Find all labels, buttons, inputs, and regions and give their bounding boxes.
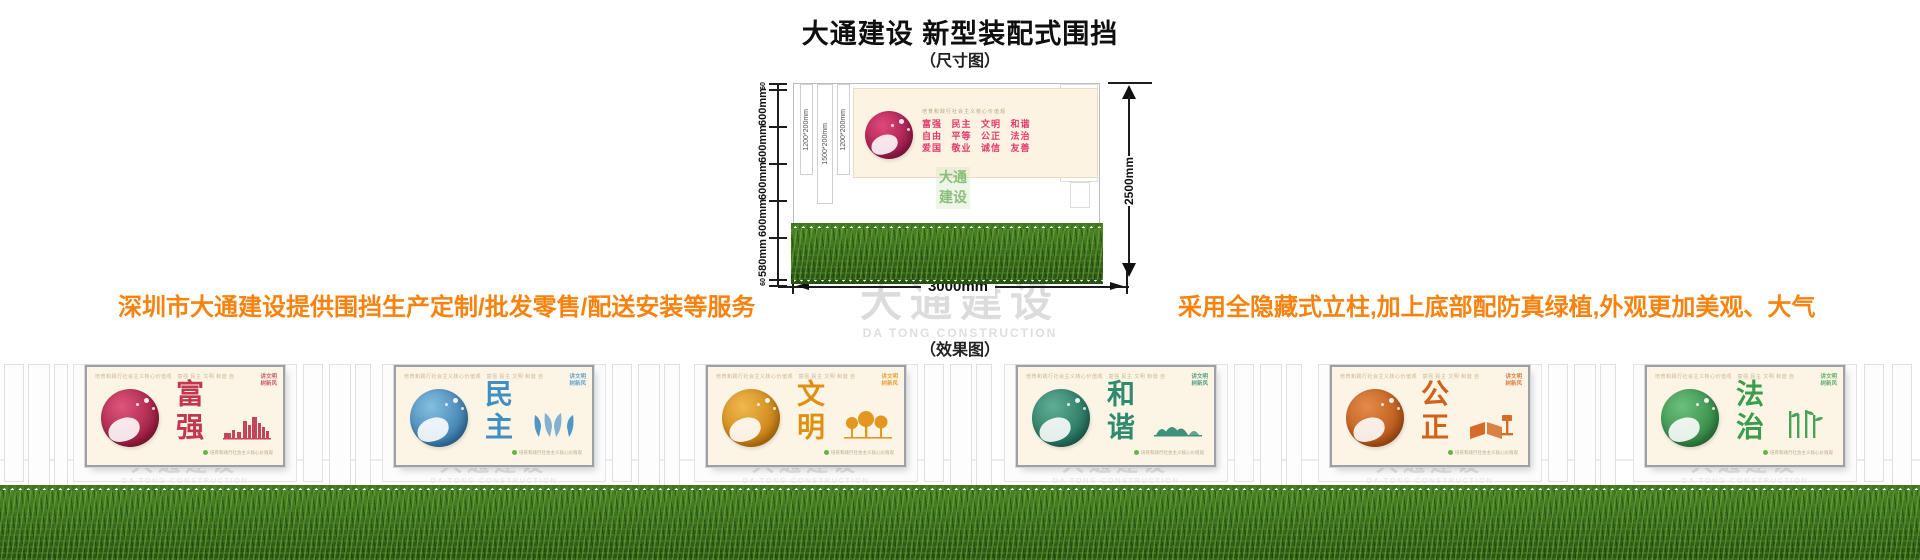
corner-line: 树新风 (1820, 381, 1837, 388)
corner-line: 讲文明 (881, 374, 898, 381)
billboard-header-text: 培育和践行社会主义核心价值观 (922, 108, 1006, 115)
panel-footer-text: 培育和践行社会主义核心价值观 (519, 450, 582, 455)
feature-note-right: 采用全隐藏式立柱,加上底部配防真绿植,外观更加美观、大气 (1178, 287, 1815, 322)
panel-word: 文明 (794, 379, 824, 445)
papercut-circle-illustration (1661, 389, 1719, 447)
right-dimension-line-top (1128, 96, 1130, 156)
dim-tick (769, 237, 787, 239)
dim-tick (1108, 82, 1152, 84)
dim-end-bar (1126, 271, 1128, 294)
panel-footer: 培育和践行社会主义核心价值观 (1448, 450, 1518, 456)
right-dimension-line-bottom (1128, 206, 1130, 264)
doves-icon (532, 409, 580, 441)
poster-canvas: 大通建设 新型装配式围挡 （尺寸图） 大通建设 DA TONG CONSTRUC… (0, 0, 1920, 560)
diagram-post-2: 1500*200mm (817, 84, 833, 204)
panel-header-text: 培育和践行社会主义核心价值观 富强 民主 文明 和谐 自由 平等 公正 法治 爱… (1655, 373, 1795, 380)
fence-post (976, 364, 992, 488)
book-and-gavel-icon (1468, 409, 1516, 441)
post-size-label: 1200*200mm (840, 109, 847, 151)
fence-post (1548, 364, 1568, 482)
papercut-circle-illustration (101, 389, 159, 447)
corner-line: 讲文明 (569, 374, 586, 381)
panel-word: 富强 (173, 379, 203, 445)
value-panel-wenming: 培育和践行社会主义核心价值观 富强 民主 文明 和谐 自由 平等 公正 法治 爱… (708, 367, 904, 465)
core-values-line-1: 富强 民主 文明 和谐 (922, 118, 1031, 130)
corner-line: 树新风 (1505, 381, 1522, 388)
panel-word: 和谐 (1104, 379, 1134, 445)
dim-label-2500: 2500mm (1120, 159, 1138, 203)
panel-footer: 培育和践行社会主义核心价值观 (1134, 450, 1204, 456)
bamboo-icon (1783, 409, 1831, 441)
panel-word: 法治 (1733, 379, 1763, 445)
panel-footer-text: 培育和践行社会主义核心价值观 (1141, 450, 1204, 455)
post-size-label: 1500*200mm (822, 123, 829, 165)
size-diagram-label: （尺寸图） (0, 47, 1920, 71)
papercut-circle-illustration (1032, 389, 1090, 447)
dim-label-600-4: 600mm (755, 196, 771, 240)
core-values-line-3: 爱国 敬业 诚信 友善 (922, 142, 1031, 154)
papercut-circle-illustration (1346, 389, 1404, 447)
panel-footer: 培育和践行社会主义核心价值观 (1763, 450, 1833, 456)
dim-tick (769, 89, 787, 91)
fence-post (355, 364, 371, 488)
dim-tick (769, 83, 787, 85)
diagram-post-1: 1200*200mm (800, 84, 813, 175)
trees-icon (844, 409, 892, 441)
panel-corner-text: 讲文明树新风 (1505, 374, 1522, 388)
effect-diagram-label: （效果图） (0, 336, 1920, 360)
green-dot-icon (824, 450, 829, 455)
fence-post (303, 364, 323, 482)
watermark-en: DA TONG CONSTRUCTION (698, 476, 914, 485)
panel-corner-text: 讲文明树新风 (569, 374, 586, 388)
papercut-circle-illustration (410, 389, 468, 447)
core-values-lines: 富强 民主 文明 和谐 自由 平等 公正 法治 爱国 敬业 诚信 友善 (922, 118, 1031, 154)
logo-line-2: 建设 (936, 187, 970, 207)
fence-post (4, 364, 24, 482)
corner-line: 树新风 (569, 381, 586, 388)
panel-footer: 培育和践行社会主义核心价值观 (824, 450, 894, 456)
corner-line: 讲文明 (1191, 374, 1208, 381)
value-panel-fuqiang: 培育和践行社会主义核心价值观 富强 民主 文明 和谐 自由 平等 公正 法治 爱… (87, 367, 283, 465)
panel-header-text: 培育和践行社会主义核心价值观 富强 民主 文明 和谐 自由 平等 公正 法治 爱… (95, 373, 235, 380)
fence-post (1600, 364, 1616, 488)
panel-corner-text: 讲文明树新风 (260, 374, 277, 388)
arrow-down-icon (1122, 263, 1136, 277)
datong-green-logo: 大通 建设 (936, 167, 970, 209)
watermark-en: DA TONG CONSTRUCTION (386, 476, 602, 485)
green-dot-icon (203, 450, 208, 455)
post-size-label: 1200*200mm (803, 109, 810, 151)
fence-post (924, 364, 944, 482)
corner-line: 讲文明 (260, 374, 277, 381)
panel-footer-text: 培育和践行社会主义核心价值观 (831, 450, 894, 455)
watermark-en: DA TONG CONSTRUCTION (1322, 476, 1538, 485)
panel-footer: 培育和践行社会主义核心价值观 (203, 450, 273, 456)
dim-label-60-bottom: 60 (756, 273, 770, 291)
green-dot-icon (512, 450, 517, 455)
page-title: 大通建设 新型装配式围挡 (0, 12, 1920, 51)
fence-post (1286, 364, 1302, 488)
fence-post (664, 364, 680, 488)
green-dot-icon (1448, 450, 1453, 455)
city-skyline-bars-icon (223, 409, 271, 441)
panel-corner-text: 讲文明树新风 (1191, 374, 1208, 388)
service-note-left: 深圳市大通建设提供围挡生产定制/批发零售/配送安装等服务 (118, 287, 755, 322)
watermark-en: DA TONG CONSTRUCTION (1008, 476, 1224, 485)
corner-line: 讲文明 (1820, 374, 1837, 381)
diagram-post-3: 1200*200mm (837, 84, 850, 175)
logo-line-1: 大通 (936, 167, 970, 187)
value-panel-fazhi: 培育和践行社会主义核心价值观 富强 民主 文明 和谐 自由 平等 公正 法治 爱… (1647, 367, 1843, 465)
corner-line: 树新风 (260, 381, 277, 388)
panel-corner-text: 讲文明树新风 (881, 374, 898, 388)
panel-word: 公正 (1418, 379, 1448, 445)
corner-line: 树新风 (1191, 381, 1208, 388)
panel-header-text: 培育和践行社会主义核心价值观 富强 民主 文明 和谐 自由 平等 公正 法治 爱… (404, 373, 544, 380)
panel-corner-text: 讲文明树新风 (1820, 374, 1837, 388)
panel-footer-text: 培育和践行社会主义核心价值观 (1455, 450, 1518, 455)
panel-word: 民主 (482, 379, 512, 445)
dim-tick (769, 126, 787, 128)
panel-footer-text: 培育和践行社会主义核心价值观 (210, 450, 273, 455)
panel-footer: 培育和践行社会主义核心价值观 (512, 450, 582, 456)
dim-tick (769, 200, 787, 202)
arrow-right-icon (1110, 282, 1123, 290)
mountains-icon (1154, 409, 1202, 441)
watermark-en: DA TONG CONSTRUCTION (77, 476, 293, 485)
fence-post (1864, 364, 1884, 482)
panel-header-text: 培育和践行社会主义核心价值观 富强 民主 文明 和谐 自由 平等 公正 法治 爱… (1026, 373, 1166, 380)
core-values-line-2: 自由 平等 公正 法治 (922, 130, 1031, 142)
corner-line: 讲文明 (1505, 374, 1522, 381)
watermark-en: DA TONG CONSTRUCTION (1637, 476, 1853, 485)
bottom-grass-hedge (0, 490, 1920, 560)
value-panel-hexie: 培育和践行社会主义核心价值观 富强 民主 文明 和谐 自由 平等 公正 法治 爱… (1018, 367, 1214, 465)
fence-post (612, 364, 632, 482)
green-dot-icon (1134, 450, 1139, 455)
diagram-post-right-lower (1070, 182, 1090, 208)
fence-post (1234, 364, 1254, 482)
panel-footer-text: 培育和践行社会主义核心价值观 (1770, 450, 1833, 455)
green-dot-icon (1763, 450, 1768, 455)
papercut-circle-illustration (722, 389, 780, 447)
value-panel-gongzheng: 培育和践行社会主义核心价值观 富强 民主 文明 和谐 自由 平等 公正 法治 爱… (1332, 367, 1528, 465)
panel-header-text: 培育和践行社会主义核心价值观 富强 民主 文明 和谐 自由 平等 公正 法治 爱… (716, 373, 856, 380)
diagram-grass-hedge (791, 228, 1103, 280)
corner-line: 树新风 (881, 381, 898, 388)
panel-header-text: 培育和践行社会主义核心价值观 富强 民主 文明 和谐 自由 平等 公正 法治 爱… (1340, 373, 1480, 380)
left-dimension-line (777, 83, 779, 287)
fence-post (54, 364, 68, 488)
papercut-circle-illustration (865, 111, 913, 159)
dim-tick (769, 163, 787, 165)
dim-tick (769, 279, 787, 281)
value-panel-minzhu: 培育和践行社会主义核心价值观 富强 民主 文明 和谐 自由 平等 公正 法治 爱… (396, 367, 592, 465)
